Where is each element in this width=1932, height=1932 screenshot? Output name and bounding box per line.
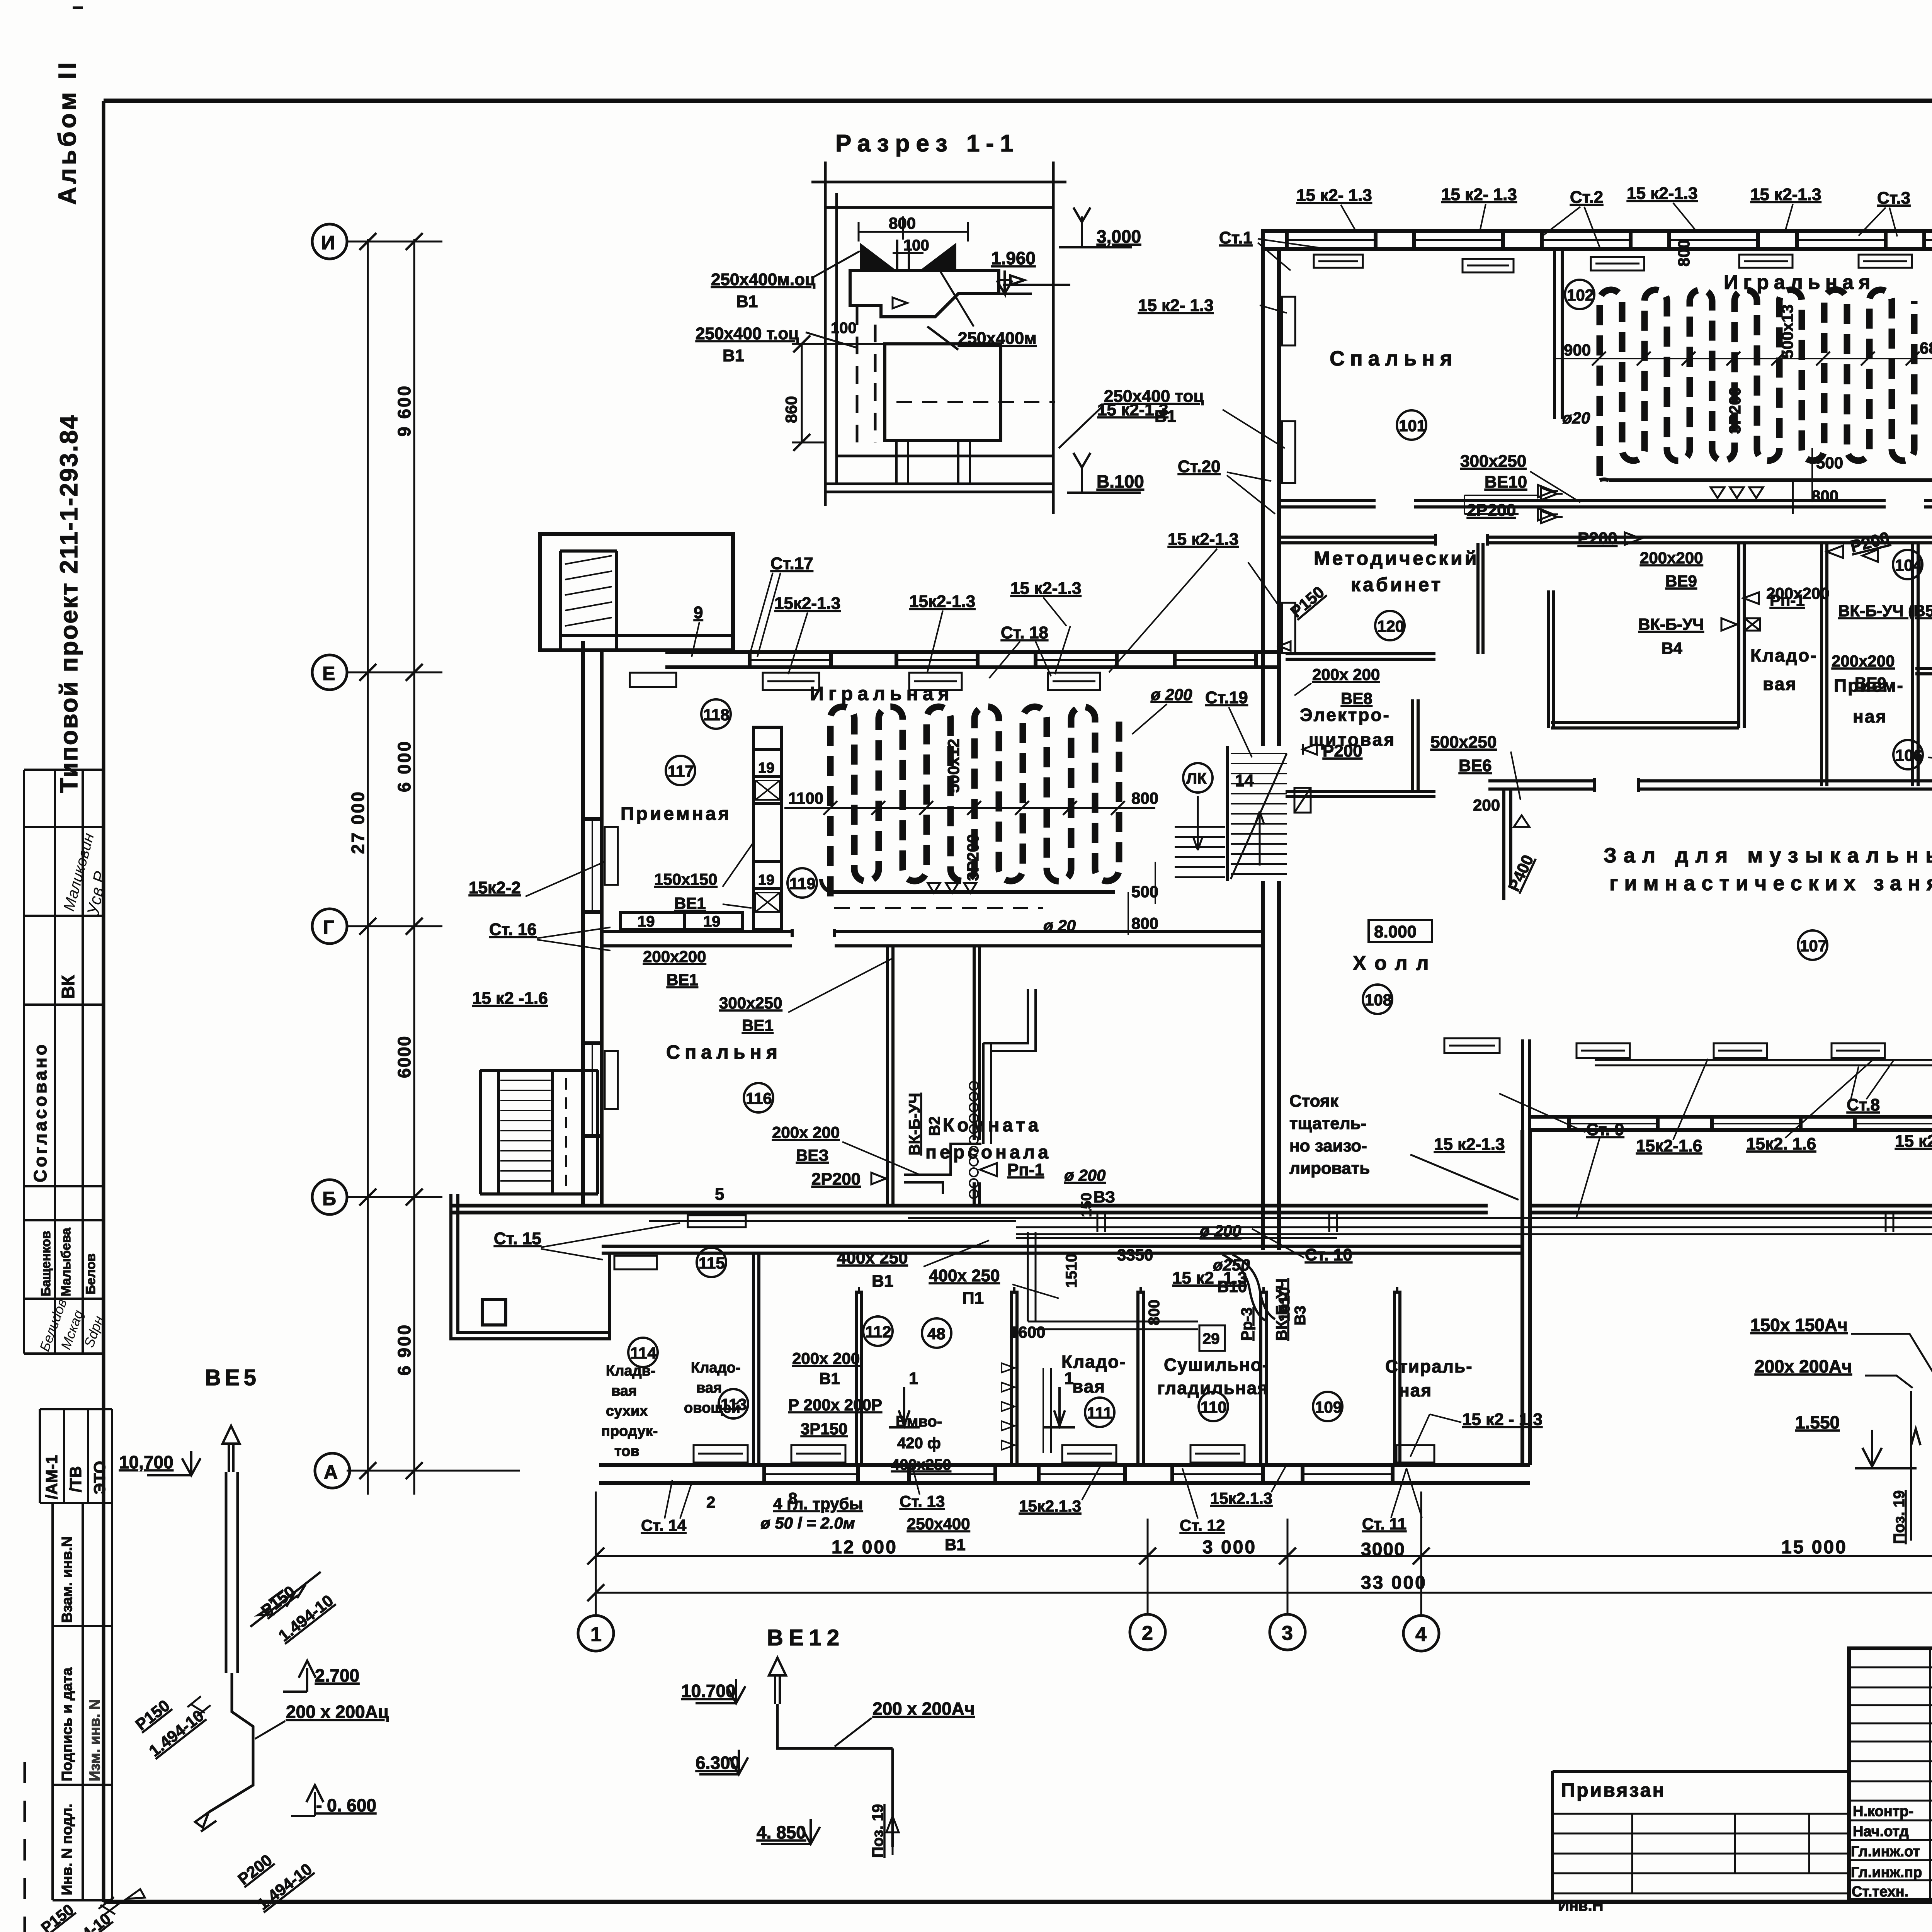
svg-text:400x 250: 400x 250 [929, 1266, 1000, 1285]
svg-text:ВЕ9: ВЕ9 [1855, 674, 1886, 692]
svg-text:800: 800 [1131, 789, 1158, 807]
svg-text:15к2-1.6: 15к2-1.6 [1636, 1136, 1702, 1155]
svg-text:250x400м: 250x400м [958, 329, 1037, 348]
svg-text:ВК-Б-УЧ: ВК-Б-УЧ [1273, 1278, 1290, 1341]
svg-text:4 гл. трубы: 4 гл. трубы [773, 1495, 863, 1513]
svg-text:111: 111 [1087, 1404, 1112, 1422]
svg-text:420 ф: 420 ф [897, 1435, 941, 1452]
svg-text:15 к2 -1.6: 15 к2 -1.6 [472, 989, 548, 1008]
svg-text:Подпись и дата: Подпись и дата [59, 1667, 75, 1781]
svg-text:ВЕ12: ВЕ12 [767, 1625, 845, 1650]
svg-text:2Р200: 2Р200 [1467, 501, 1516, 520]
svg-text:200x 200Ач: 200x 200Ач [1755, 1356, 1852, 1376]
svg-text:500x12: 500x12 [944, 739, 963, 793]
svg-text:100: 100 [903, 237, 929, 254]
svg-text:ВЕ1: ВЕ1 [667, 971, 698, 989]
svg-text:1100: 1100 [788, 789, 823, 807]
svg-text:110: 110 [1201, 1398, 1227, 1416]
svg-text:Ст.техн.: Ст.техн. [1852, 1884, 1908, 1900]
svg-text:Альбом II: Альбом II [53, 59, 81, 205]
svg-text:ВК-Б-УЧ: ВК-Б-УЧ [1638, 615, 1704, 633]
svg-text:2: 2 [706, 1493, 715, 1511]
svg-text:118: 118 [703, 706, 730, 724]
svg-text:ВК-Б-УЧ (В5): ВК-Б-УЧ (В5) [1838, 602, 1932, 620]
svg-text:ø 20: ø 20 [1043, 917, 1076, 935]
svg-text:Ст. 9: Ст. 9 [1586, 1120, 1624, 1139]
svg-text:15 к2- 1.6: 15 к2- 1.6 [1895, 1132, 1932, 1151]
svg-text:Зал для музыкальных и: Зал для музыкальных и [1604, 844, 1932, 867]
svg-text:Игральная: Игральная [1724, 271, 1875, 294]
svg-text:Ст. 12: Ст. 12 [1180, 1516, 1225, 1534]
svg-text:Ст. 16: Ст. 16 [489, 920, 537, 939]
svg-text:Гл.инж.пр: Гл.инж.пр [1851, 1864, 1922, 1881]
svg-text:гимнастических занятий: гимнастических занятий [1609, 872, 1932, 895]
svg-text:лировать: лировать [1289, 1159, 1370, 1178]
svg-text:Стояк: Стояк [1289, 1092, 1339, 1111]
svg-text:Спальня: Спальня [666, 1041, 782, 1063]
svg-text:Электро-: Электро- [1300, 705, 1391, 725]
svg-text:15 к2 - 1.3: 15 к2 - 1.3 [1462, 1410, 1543, 1429]
svg-text:250x400: 250x400 [907, 1515, 970, 1533]
svg-text:300x250: 300x250 [1460, 452, 1526, 471]
svg-text:200 x 200Ач: 200 x 200Ач [872, 1699, 975, 1719]
svg-text:800: 800 [1131, 914, 1158, 932]
svg-text:П1: П1 [962, 1289, 984, 1308]
svg-text:2: 2 [1142, 1622, 1153, 1645]
svg-text:500x13: 500x13 [1778, 304, 1796, 359]
svg-text:860: 860 [782, 396, 800, 423]
svg-text:1.550: 1.550 [1795, 1412, 1840, 1432]
svg-text:Типовой проект 211-1-293.84: Типовой проект 211-1-293.84 [55, 414, 83, 793]
svg-text:200x200: 200x200 [1832, 652, 1895, 670]
svg-text:В3: В3 [1292, 1306, 1309, 1325]
svg-text:Нач.отд: Нач.отд [1853, 1823, 1909, 1840]
svg-text:3350: 3350 [1117, 1246, 1153, 1264]
svg-text:А: А [324, 1461, 338, 1483]
svg-text:117: 117 [668, 762, 694, 780]
svg-text:- 0. 600: - 0. 600 [316, 1795, 376, 1815]
svg-text:108: 108 [1365, 991, 1392, 1009]
svg-text:400x250: 400x250 [891, 1456, 951, 1473]
svg-text:ВЕ8: ВЕ8 [1341, 689, 1372, 707]
svg-text:2Р200: 2Р200 [811, 1170, 861, 1189]
svg-text:15к2-1.3: 15к2-1.3 [774, 594, 840, 613]
svg-text:Бащенков: Бащенков [39, 1231, 53, 1296]
svg-text:В1: В1 [945, 1536, 966, 1554]
svg-text:Ст. 13: Ст. 13 [900, 1492, 945, 1510]
svg-text:ВЕ10: ВЕ10 [1485, 473, 1527, 492]
svg-text:Методический: Методический [1314, 548, 1479, 569]
svg-text:тщатель-: тщатель- [1289, 1114, 1366, 1133]
svg-text:1600: 1600 [1009, 1323, 1045, 1341]
svg-text:3,000: 3,000 [1097, 226, 1141, 247]
svg-text:15 к2-1.3: 15 к2-1.3 [1097, 400, 1168, 419]
svg-text:В1: В1 [736, 292, 758, 311]
svg-text:19: 19 [758, 872, 774, 888]
svg-text:15 к2-1.3: 15 к2-1.3 [1750, 185, 1821, 204]
svg-text:Инв. N подл.: Инв. N подл. [59, 1804, 75, 1895]
svg-text:овощей: овощей [684, 1400, 740, 1416]
svg-text:Кладв-: Кладв- [606, 1363, 656, 1379]
svg-text:15 к2- 1.3: 15 к2- 1.3 [1441, 185, 1517, 204]
svg-text:500: 500 [1816, 454, 1843, 472]
svg-text:120: 120 [1377, 617, 1404, 635]
svg-text:15к2-1.3: 15к2-1.3 [909, 592, 975, 611]
svg-text:Рп-1: Рп-1 [1770, 591, 1805, 609]
svg-text:19: 19 [758, 760, 774, 776]
svg-text:вая: вая [611, 1383, 637, 1399]
svg-text:15к2-2: 15к2-2 [469, 878, 521, 897]
svg-text:1: 1 [909, 1369, 918, 1388]
svg-text:5: 5 [715, 1185, 724, 1204]
svg-text:109: 109 [1315, 1398, 1342, 1416]
svg-text:Привязан: Привязан [1561, 1779, 1666, 1801]
svg-text:Кладо-: Кладо- [1750, 645, 1818, 665]
svg-text:6.300: 6.300 [696, 1753, 740, 1773]
svg-text:3000: 3000 [1361, 1539, 1405, 1560]
svg-text:4. 850: 4. 850 [757, 1822, 806, 1842]
svg-text:1510: 1510 [1063, 1253, 1080, 1288]
svg-text:Согласовано: Согласовано [30, 1042, 50, 1182]
svg-text:Ст. 11: Ст. 11 [1362, 1515, 1406, 1533]
svg-text:В.100: В.100 [1097, 471, 1144, 492]
svg-text:15 к2-1.3: 15 к2-1.3 [1627, 184, 1697, 203]
svg-text:вая: вая [1763, 674, 1797, 694]
svg-text:6 900: 6 900 [394, 1323, 414, 1376]
svg-text:3Р200: 3Р200 [964, 834, 982, 881]
svg-text:200: 200 [1473, 796, 1500, 814]
svg-text:400x 250: 400x 250 [837, 1248, 908, 1267]
svg-text:Ст.19: Ст.19 [1205, 688, 1248, 707]
svg-text:Сушильно-: Сушильно- [1164, 1355, 1269, 1375]
svg-text:Поз. 19: Поз. 19 [869, 1804, 886, 1858]
svg-text:Ст.1: Ст.1 [1219, 228, 1252, 247]
svg-text:101: 101 [1399, 417, 1426, 435]
svg-text:2.700: 2.700 [315, 1665, 359, 1685]
svg-text:12 000: 12 000 [832, 1537, 898, 1558]
svg-text:4: 4 [1415, 1623, 1427, 1646]
svg-text:15к2.1.3: 15к2.1.3 [1019, 1497, 1081, 1515]
svg-text:8.000: 8.000 [1374, 922, 1417, 941]
svg-text:27 000: 27 000 [348, 790, 368, 854]
svg-text:Ст.2: Ст.2 [1570, 188, 1603, 207]
svg-text:ВЗ: ВЗ [1094, 1188, 1115, 1206]
svg-text:Рр-3: Рр-3 [1238, 1307, 1255, 1341]
svg-text:200 x 200Ац: 200 x 200Ац [286, 1702, 389, 1722]
svg-text:ø 200: ø 200 [1200, 1222, 1241, 1240]
svg-text:900: 900 [1564, 341, 1591, 359]
svg-text:ВЕ1: ВЕ1 [742, 1016, 774, 1034]
svg-text:продук-: продук- [601, 1423, 658, 1439]
svg-text:ЛК: ЛК [1186, 770, 1207, 787]
svg-text:кабинет: кабинет [1351, 574, 1443, 595]
svg-text:800: 800 [1146, 1299, 1163, 1325]
svg-text:115: 115 [699, 1254, 725, 1272]
svg-text:Рп-1: Рп-1 [1007, 1160, 1044, 1179]
svg-text:15 к2- 1.3: 15 к2- 1.3 [1296, 186, 1372, 205]
svg-text:10.700: 10.700 [681, 1681, 736, 1701]
svg-text:ø 200: ø 200 [1064, 1166, 1105, 1184]
svg-text:Ст.3: Ст.3 [1877, 189, 1910, 207]
svg-text:250x400 т.оц: 250x400 т.оц [696, 324, 799, 343]
svg-text:Р 200x 200Р: Р 200x 200Р [788, 1396, 882, 1414]
svg-text:В2: В2 [926, 1116, 943, 1136]
svg-text:3: 3 [1282, 1622, 1293, 1645]
svg-text:Стираль-: Стираль- [1385, 1356, 1473, 1376]
svg-text:1.960: 1.960 [991, 248, 1036, 268]
svg-text:Ст. 14: Ст. 14 [641, 1516, 687, 1534]
svg-text:ø 50 l = 2.0м: ø 50 l = 2.0м [760, 1514, 855, 1532]
svg-text:114: 114 [630, 1344, 656, 1362]
svg-text:Малыбева: Малыбева [59, 1227, 73, 1296]
svg-text:19: 19 [703, 913, 721, 930]
svg-text:19: 19 [638, 913, 655, 930]
svg-text:15к2. 1.6: 15к2. 1.6 [1746, 1134, 1816, 1153]
svg-text:В1: В1 [819, 1369, 840, 1388]
svg-text:ВЕ9: ВЕ9 [1665, 572, 1697, 590]
svg-text:ВЕ5: ВЕ5 [205, 1365, 260, 1390]
svg-text:но заизо-: но заизо- [1289, 1136, 1367, 1155]
svg-text:3 000: 3 000 [1202, 1537, 1257, 1558]
svg-text:Р200: Р200 [1323, 742, 1362, 760]
svg-text:Комната: Комната [943, 1115, 1041, 1136]
svg-text:Г: Г [323, 917, 334, 938]
svg-text:ная: ная [1853, 706, 1887, 726]
svg-text:Поз. 19: Поз. 19 [1891, 1490, 1908, 1544]
svg-text:Б: Б [322, 1188, 336, 1209]
svg-text:Р200: Р200 [1578, 529, 1617, 548]
svg-text:И: И [321, 232, 335, 253]
svg-text:ВЕ1: ВЕ1 [674, 894, 706, 912]
svg-text:6000: 6000 [394, 1036, 414, 1078]
svg-text:200x 200: 200x 200 [792, 1349, 860, 1367]
svg-text:Ст. 15: Ст. 15 [494, 1229, 541, 1248]
svg-text:15 к2-1.3: 15 к2-1.3 [1168, 530, 1238, 549]
svg-text:150x150: 150x150 [654, 870, 718, 888]
svg-text:104: 104 [1895, 556, 1922, 574]
svg-text:Разрез 1-1: Разрез 1-1 [835, 130, 1020, 157]
svg-text:Приемная: Приемная [621, 804, 731, 824]
svg-text:вая: вая [696, 1380, 722, 1396]
svg-text:150x 150Ач: 150x 150Ач [1750, 1315, 1848, 1335]
svg-text:ная: ная [1399, 1380, 1432, 1400]
svg-text:Е: Е [322, 663, 335, 684]
svg-text:500: 500 [1131, 883, 1158, 901]
svg-text:10,700: 10,700 [119, 1452, 173, 1472]
svg-text:/ТВ: /ТВ [66, 1466, 85, 1492]
svg-text:107: 107 [1800, 937, 1827, 955]
svg-text:116: 116 [746, 1089, 772, 1107]
svg-text:48: 48 [927, 1325, 946, 1343]
svg-text:Н.контр-: Н.контр- [1853, 1803, 1913, 1820]
svg-text:3Р200: 3Р200 [1726, 387, 1744, 434]
svg-text:ø20: ø20 [1562, 409, 1590, 427]
svg-text:15 к2-1.3: 15 к2-1.3 [1434, 1135, 1505, 1154]
svg-text:102: 102 [1567, 286, 1594, 304]
svg-text:119: 119 [789, 874, 816, 893]
svg-text:В1: В1 [723, 346, 744, 365]
svg-text:3Р150: 3Р150 [801, 1420, 847, 1438]
svg-text:Ст. 10: Ст. 10 [1305, 1245, 1352, 1264]
svg-text:Белов: Белов [83, 1253, 98, 1294]
svg-text:15 к2- 1.3: 15 к2- 1.3 [1138, 296, 1214, 315]
svg-text:Гл.инж.от: Гл.инж.от [1851, 1844, 1920, 1860]
svg-text:Холл: Холл [1353, 952, 1437, 975]
svg-text:15 000: 15 000 [1781, 1537, 1847, 1558]
svg-text:800: 800 [1811, 487, 1838, 505]
svg-text:ВК-Б-УЧ: ВК-Б-УЧ [906, 1093, 923, 1155]
svg-text:1: 1 [590, 1623, 602, 1646]
svg-text:33 000: 33 000 [1361, 1573, 1427, 1593]
svg-text:Инв.Н: Инв.Н [1558, 1897, 1604, 1914]
svg-text:ВК: ВК [58, 975, 78, 999]
svg-text:15к2.1.3: 15к2.1.3 [1210, 1489, 1272, 1507]
svg-text:9: 9 [694, 603, 703, 622]
svg-text:персонала: персонала [925, 1142, 1051, 1163]
svg-text:Кладо-: Кладо- [691, 1360, 740, 1376]
svg-text:В4: В4 [1662, 639, 1682, 657]
svg-text:112: 112 [865, 1323, 891, 1341]
svg-text:800: 800 [889, 214, 916, 232]
svg-text:250x400м.оц: 250x400м.оц [711, 270, 815, 289]
svg-text:ВЕЗ: ВЕЗ [796, 1146, 829, 1164]
svg-text:Бмво-: Бмво- [896, 1413, 942, 1430]
svg-text:200x 200: 200x 200 [1312, 665, 1380, 684]
svg-text:6 000: 6 000 [394, 740, 414, 792]
svg-text:Ст. 18: Ст. 18 [1001, 623, 1048, 642]
svg-text:ВЕ6: ВЕ6 [1459, 756, 1492, 775]
svg-text:150: 150 [1078, 1193, 1095, 1217]
svg-text:ø 200: ø 200 [1151, 685, 1192, 704]
svg-text:тов: тов [614, 1443, 639, 1459]
svg-text:Ст.17: Ст.17 [770, 554, 813, 573]
svg-text:Кладо-: Кладо- [1061, 1352, 1126, 1372]
svg-text:9 600: 9 600 [394, 384, 414, 437]
svg-text:Игральная: Игральная [810, 683, 954, 704]
svg-text:500x250: 500x250 [1430, 733, 1497, 752]
svg-text:106: 106 [1895, 746, 1922, 764]
svg-text:сухих: сухих [606, 1403, 648, 1419]
svg-text:Взам. инв.N: Взам. инв.N [59, 1536, 75, 1623]
svg-text:Спальня: Спальня [1330, 347, 1458, 370]
svg-text:680: 680 [1920, 339, 1932, 357]
svg-text:гладильная: гладильная [1157, 1378, 1269, 1398]
svg-text:В1: В1 [872, 1272, 893, 1291]
svg-text:100: 100 [831, 320, 857, 337]
svg-text:200x200: 200x200 [1640, 549, 1703, 567]
svg-text:800: 800 [1675, 240, 1693, 267]
svg-text:15 к2-1.3: 15 к2-1.3 [1010, 579, 1081, 598]
svg-text:200x 200: 200x 200 [772, 1123, 840, 1141]
svg-text:29: 29 [1202, 1330, 1220, 1347]
svg-text:вая: вая [1072, 1376, 1105, 1396]
svg-text:Ст.20: Ст.20 [1178, 457, 1221, 476]
svg-text:Изм. инв. N: Изм. инв. N [87, 1699, 103, 1781]
svg-text:300x250: 300x250 [719, 994, 782, 1012]
svg-text:15 к2 .1.3: 15 к2 .1.3 [1172, 1269, 1247, 1287]
svg-text:200x200: 200x200 [643, 947, 706, 966]
svg-text:14: 14 [1235, 771, 1254, 790]
svg-text:/АМ-1: /АМ-1 [43, 1455, 61, 1499]
svg-text:ЭТО: ЭТО [90, 1461, 109, 1495]
